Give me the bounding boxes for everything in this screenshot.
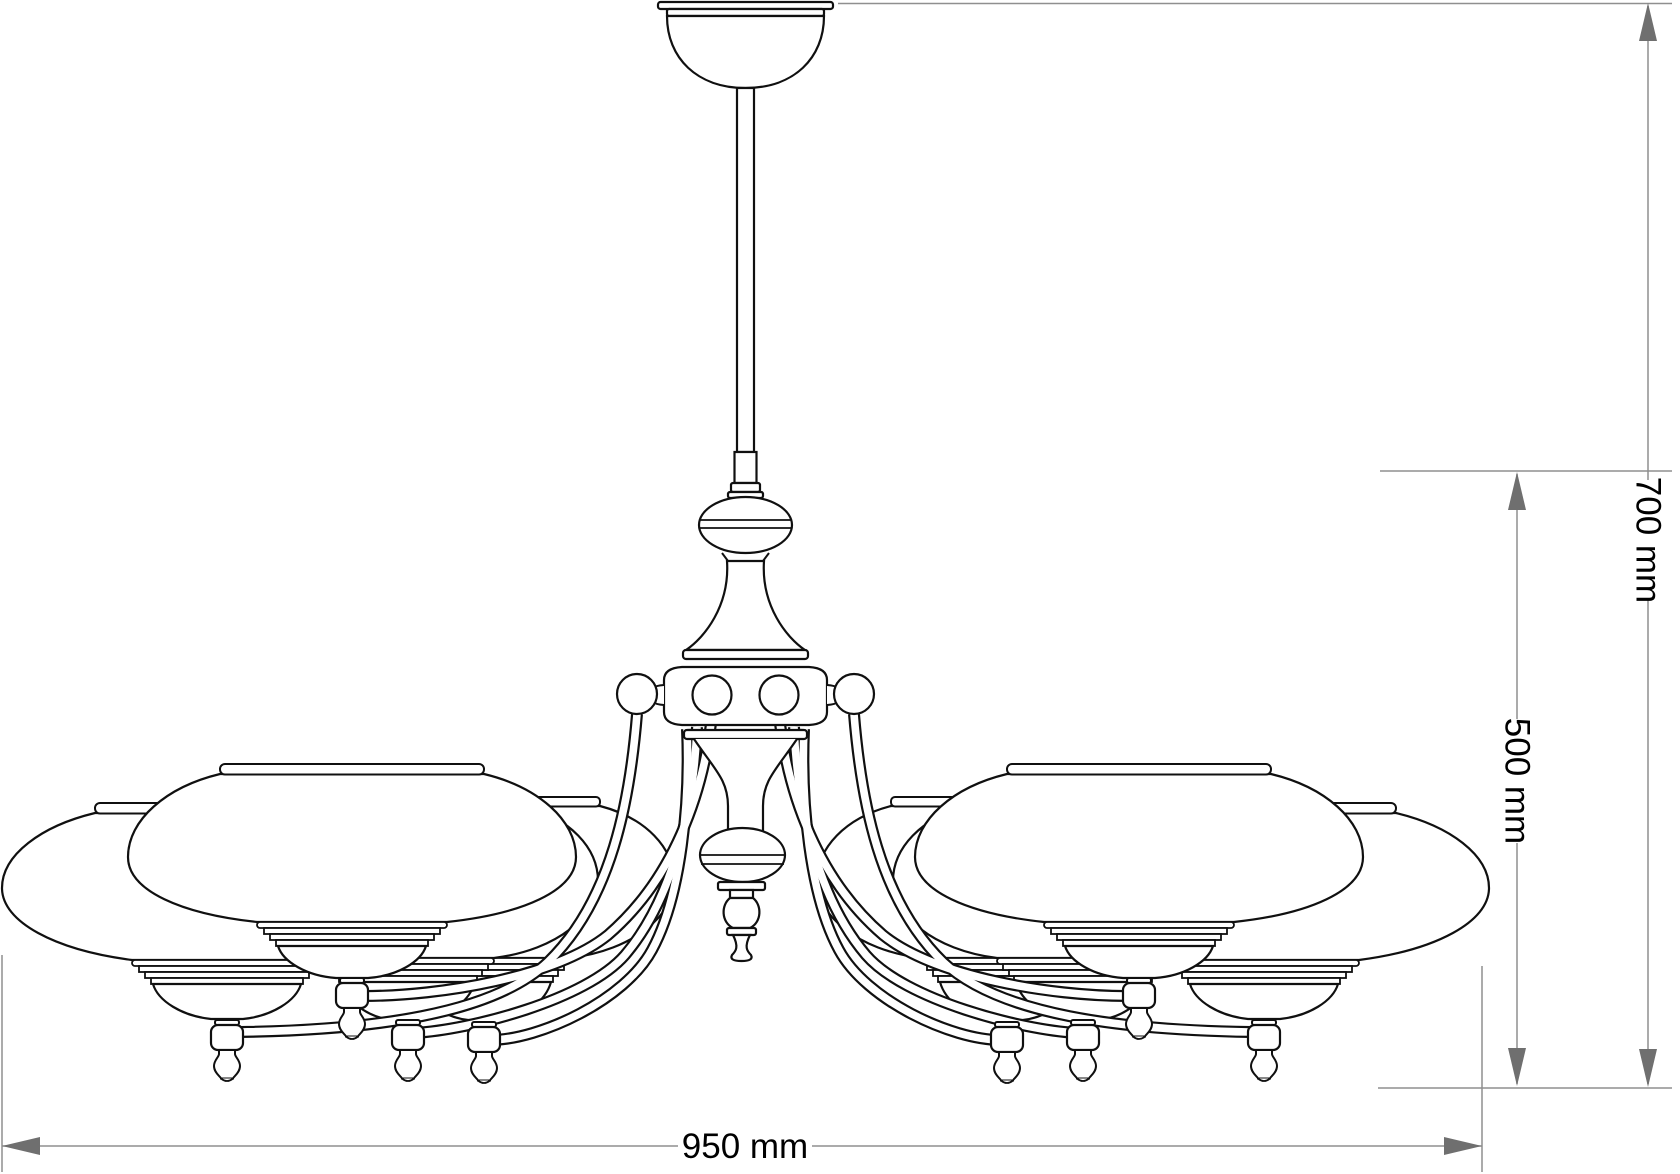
width-label: 950 mm: [682, 1127, 808, 1166]
right-arm-assembly: [779, 714, 1489, 1083]
total-height-label: 700 mm: [1629, 477, 1668, 603]
dimension-total-height: 700 mm: [1629, 3, 1668, 1087]
suspension-rod: [699, 88, 792, 561]
left-arm-assembly: [2, 714, 712, 1083]
dimension-width: 950 mm: [2, 1127, 1482, 1166]
arrow-left-icon: [2, 1137, 40, 1155]
arrow-right-icon: [1444, 1137, 1482, 1155]
arrow-up-icon: [1639, 3, 1657, 41]
ceiling-canopy: [658, 2, 833, 88]
chandelier-technical-drawing: 950 mm 700 mm 500 mm: [0, 0, 1680, 1174]
arrow-down-icon: [1508, 1048, 1526, 1086]
dimension-body-height: 500 mm: [1498, 472, 1537, 1086]
arrow-down-icon: [1639, 1049, 1657, 1087]
drawing-canvas: 950 mm 700 mm 500 mm: [0, 0, 1680, 1174]
arrow-up-icon: [1508, 472, 1526, 510]
body-height-label: 500 mm: [1498, 718, 1537, 844]
